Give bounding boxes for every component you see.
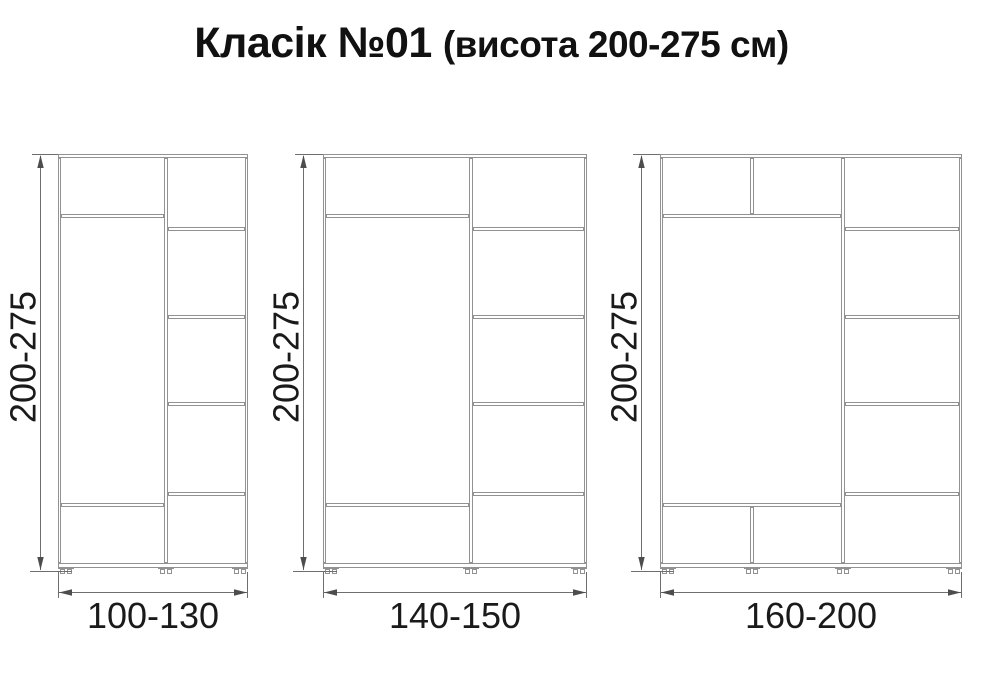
panel [664,504,841,507]
panel [324,159,326,563]
panel [664,215,841,218]
panel [751,508,754,563]
panel [846,316,959,319]
wardrobe-diagrams: 200-275100-130200-275140-150200-275160-2… [0,0,983,700]
panel [474,316,584,319]
panel [846,228,959,231]
width-label: 100-130 [87,595,219,636]
wardrobe-140-150: 200-275140-150 [266,155,588,637]
panel [161,570,165,574]
panel [949,570,953,574]
height-label: 200-275 [266,291,307,423]
width-label: 160-200 [745,595,877,636]
panel [168,570,172,574]
panel [466,570,470,574]
panel [246,159,248,563]
panel [581,570,585,574]
panel [62,215,164,218]
panel [169,316,245,319]
panel [165,159,168,563]
panel [574,570,578,574]
panel [661,155,962,158]
panel [956,570,960,574]
panel [842,159,845,563]
dimension-arrowhead [661,589,674,595]
dimension-arrowhead [948,589,961,595]
panel [169,403,245,406]
dimension-arrowhead [573,589,586,595]
dimension-arrowhead [300,155,306,168]
dimension-arrowhead [324,589,337,595]
panel [169,228,245,231]
panel [661,564,962,568]
panel [324,155,587,158]
dimension-arrowhead [234,589,247,595]
panel [59,155,248,158]
dimension-arrowhead [638,155,644,168]
panel [59,564,248,568]
dimension-arrowhead [59,589,72,595]
wardrobe-160-200: 200-275160-200 [604,155,963,637]
panel [59,159,61,563]
wardrobe-diagram-svg: 200-275100-130200-275140-150200-275160-2… [0,0,983,700]
panel [474,493,584,496]
height-label: 200-275 [3,291,44,423]
panel [838,570,842,574]
wardrobe-100-130: 200-275100-130 [3,155,249,637]
panel [845,570,849,574]
panel [960,159,962,563]
panel [751,159,754,214]
panel [324,564,587,568]
dimension-arrowhead [638,557,644,570]
panel [474,228,584,231]
panel [754,570,758,574]
panel [242,570,246,574]
dimension-arrowhead [37,557,43,570]
panel [62,504,164,507]
panel [585,159,587,563]
panel [474,403,584,406]
panel [327,215,469,218]
dimension-arrowhead [300,557,306,570]
panel [470,159,473,563]
page: Класік №01(висота 200-275 см) 200-275100… [0,0,983,700]
panel [846,403,959,406]
panel [327,504,469,507]
panel [747,570,751,574]
height-label: 200-275 [604,291,645,423]
dimension-arrowhead [37,155,43,168]
panel [846,493,959,496]
panel [235,570,239,574]
width-label: 140-150 [389,595,521,636]
panel [661,159,663,563]
panel [169,493,245,496]
panel [473,570,477,574]
